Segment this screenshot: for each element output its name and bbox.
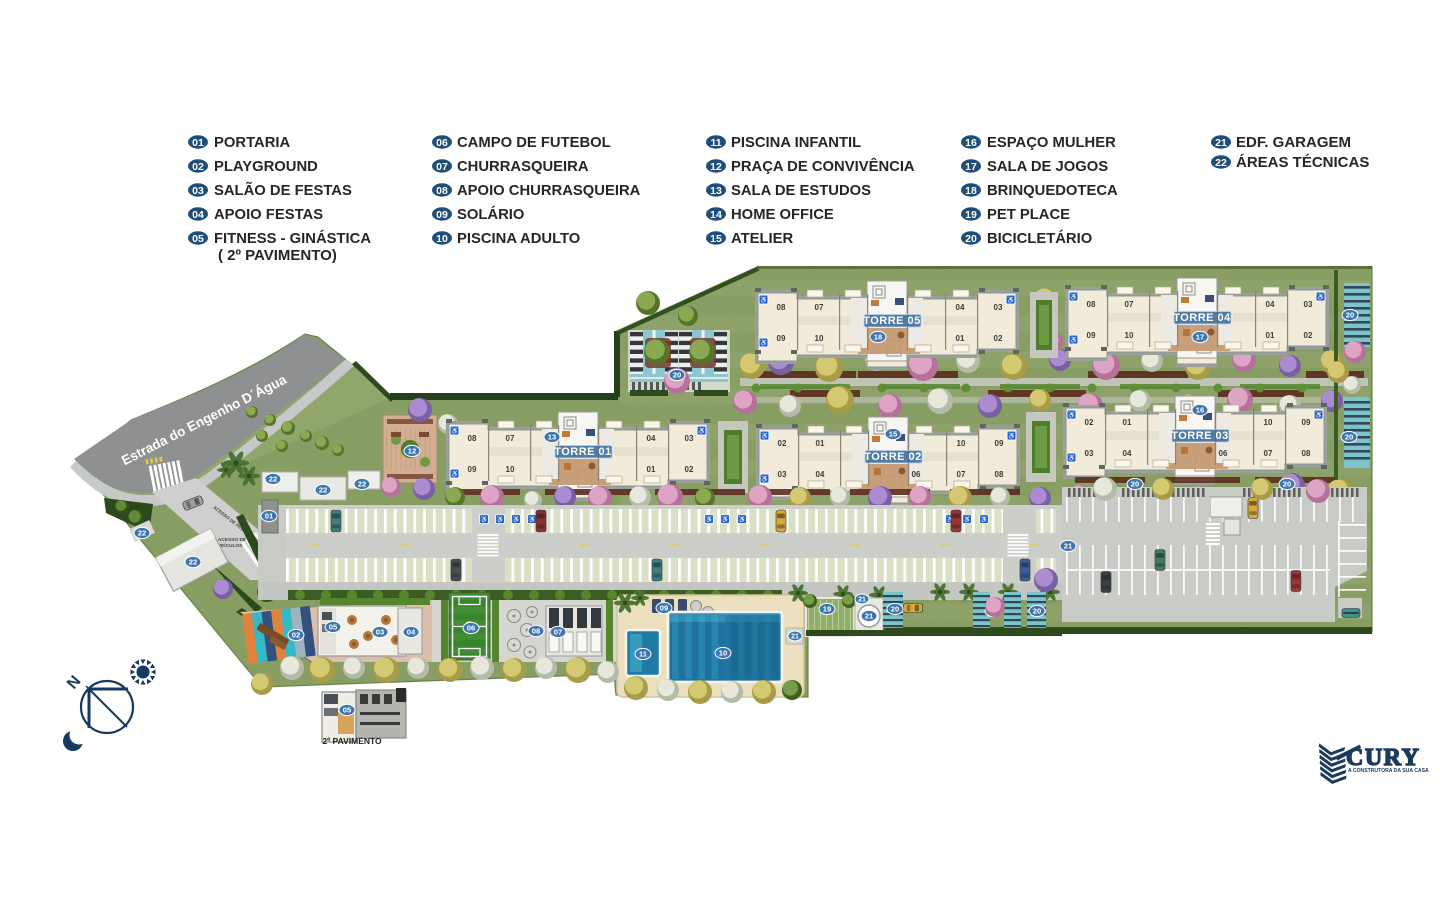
svg-text:22: 22 bbox=[319, 486, 327, 495]
svg-text:09: 09 bbox=[1302, 418, 1311, 427]
svg-text:♿: ♿ bbox=[760, 475, 768, 483]
svg-text:10: 10 bbox=[1125, 331, 1134, 340]
svg-text:04: 04 bbox=[956, 303, 965, 312]
svg-text:03: 03 bbox=[376, 628, 384, 637]
svg-text:♿: ♿ bbox=[450, 470, 458, 478]
svg-text:10: 10 bbox=[506, 465, 515, 474]
svg-text:09: 09 bbox=[1087, 331, 1096, 340]
svg-text:15: 15 bbox=[889, 430, 898, 439]
svg-text:♿: ♿ bbox=[1067, 454, 1075, 462]
svg-text:11: 11 bbox=[710, 137, 721, 149]
svg-text:10: 10 bbox=[957, 439, 966, 448]
svg-text:SALA DE JOGOS: SALA DE JOGOS bbox=[987, 159, 1108, 175]
svg-text:01: 01 bbox=[956, 334, 965, 343]
svg-text:20: 20 bbox=[1283, 480, 1291, 489]
svg-text:22: 22 bbox=[1215, 157, 1227, 169]
svg-text:10: 10 bbox=[436, 233, 448, 245]
svg-text:05: 05 bbox=[343, 706, 352, 715]
svg-text:02: 02 bbox=[292, 631, 300, 640]
svg-text:18: 18 bbox=[965, 185, 977, 197]
svg-text:16: 16 bbox=[1196, 406, 1204, 415]
svg-text:09: 09 bbox=[777, 334, 786, 343]
svg-text:19: 19 bbox=[965, 209, 977, 221]
svg-text:21: 21 bbox=[858, 597, 866, 604]
svg-text:PET PLACE: PET PLACE bbox=[987, 207, 1070, 223]
svg-text:A CONSTRUTORA DA SUA CASA: A CONSTRUTORA DA SUA CASA bbox=[1348, 768, 1429, 774]
svg-text:ATELIER: ATELIER bbox=[731, 231, 794, 247]
svg-text:02: 02 bbox=[192, 161, 204, 173]
svg-text:07: 07 bbox=[506, 434, 515, 443]
svg-text:ÁREAS TÉCNICAS: ÁREAS TÉCNICAS bbox=[1236, 154, 1369, 171]
svg-text:♿: ♿ bbox=[1006, 296, 1014, 304]
svg-text:20: 20 bbox=[965, 233, 977, 245]
svg-text:PLAYGROUND: PLAYGROUND bbox=[214, 159, 318, 175]
svg-text:21: 21 bbox=[1064, 542, 1073, 551]
svg-text:05: 05 bbox=[329, 623, 338, 632]
svg-text:♿: ♿ bbox=[705, 516, 713, 524]
svg-text:08: 08 bbox=[532, 627, 540, 636]
svg-text:20: 20 bbox=[891, 605, 899, 614]
svg-text:♿: ♿ bbox=[450, 427, 458, 435]
svg-text:20: 20 bbox=[1345, 433, 1353, 442]
svg-text:APOIO CHURRASQUEIRA: APOIO CHURRASQUEIRA bbox=[457, 183, 641, 199]
svg-text:02: 02 bbox=[1085, 418, 1094, 427]
svg-text:01: 01 bbox=[1123, 418, 1132, 427]
svg-text:07: 07 bbox=[554, 628, 562, 637]
svg-text:TORRE 04: TORRE 04 bbox=[1173, 312, 1231, 324]
svg-text:15: 15 bbox=[710, 233, 722, 245]
svg-text:♿: ♿ bbox=[760, 432, 768, 440]
svg-text:TORRE 01: TORRE 01 bbox=[554, 446, 612, 458]
svg-text:07: 07 bbox=[1264, 449, 1273, 458]
svg-text:07: 07 bbox=[1125, 300, 1134, 309]
svg-text:11: 11 bbox=[639, 650, 648, 659]
svg-text:♿: ♿ bbox=[480, 516, 488, 524]
svg-text:02: 02 bbox=[685, 465, 694, 474]
svg-text:TORRE 02: TORRE 02 bbox=[864, 451, 922, 463]
svg-text:22: 22 bbox=[138, 529, 146, 538]
svg-text:♿: ♿ bbox=[759, 296, 767, 304]
svg-text:03: 03 bbox=[778, 470, 787, 479]
svg-text:12: 12 bbox=[710, 161, 722, 173]
svg-text:04: 04 bbox=[1123, 449, 1132, 458]
svg-text:SALÃO DE FESTAS: SALÃO DE FESTAS bbox=[214, 181, 352, 199]
svg-text:TORRE 03: TORRE 03 bbox=[1171, 430, 1229, 442]
svg-text:04: 04 bbox=[647, 434, 656, 443]
svg-text:♿: ♿ bbox=[759, 339, 767, 347]
svg-text:♿: ♿ bbox=[738, 516, 746, 524]
svg-text:♿: ♿ bbox=[1069, 293, 1077, 301]
svg-text:BRINQUEDOTECA: BRINQUEDOTECA bbox=[987, 183, 1118, 199]
svg-text:PRAÇA DE CONVIVÊNCIA: PRAÇA DE CONVIVÊNCIA bbox=[731, 157, 915, 175]
svg-text:09: 09 bbox=[660, 604, 668, 613]
svg-text:08: 08 bbox=[1302, 449, 1311, 458]
svg-text:03: 03 bbox=[994, 303, 1003, 312]
svg-text:02: 02 bbox=[994, 334, 1003, 343]
svg-text:♿: ♿ bbox=[528, 516, 536, 524]
svg-text:♿: ♿ bbox=[1069, 336, 1077, 344]
svg-text:04: 04 bbox=[407, 628, 416, 637]
svg-text:08: 08 bbox=[436, 185, 448, 197]
svg-text:22: 22 bbox=[269, 475, 277, 484]
svg-text:♿: ♿ bbox=[963, 516, 971, 524]
svg-text:12: 12 bbox=[408, 447, 416, 456]
svg-text:04: 04 bbox=[1266, 300, 1275, 309]
svg-text:21: 21 bbox=[791, 634, 799, 641]
svg-text:13: 13 bbox=[548, 433, 556, 442]
svg-text:SOLÁRIO: SOLÁRIO bbox=[457, 206, 524, 223]
svg-text:♿: ♿ bbox=[721, 516, 729, 524]
svg-text:♿: ♿ bbox=[980, 516, 988, 524]
svg-text:01: 01 bbox=[647, 465, 656, 474]
svg-text:19: 19 bbox=[823, 605, 831, 614]
svg-text:17: 17 bbox=[1196, 333, 1204, 342]
svg-text:09: 09 bbox=[995, 439, 1004, 448]
svg-text:08: 08 bbox=[995, 470, 1004, 479]
svg-text:APOIO FESTAS: APOIO FESTAS bbox=[214, 207, 323, 223]
svg-text:N: N bbox=[64, 673, 84, 693]
svg-text:♿: ♿ bbox=[1316, 293, 1324, 301]
svg-text:21: 21 bbox=[865, 612, 874, 621]
svg-text:HOME OFFICE: HOME OFFICE bbox=[731, 207, 834, 223]
svg-text:10: 10 bbox=[719, 649, 727, 658]
svg-text:18: 18 bbox=[874, 333, 882, 342]
svg-text:17: 17 bbox=[965, 161, 977, 173]
svg-text:04: 04 bbox=[192, 209, 204, 221]
svg-text:PISCINA INFANTIL: PISCINA INFANTIL bbox=[731, 135, 861, 151]
svg-text:10: 10 bbox=[815, 334, 824, 343]
svg-text:♿: ♿ bbox=[697, 427, 705, 435]
svg-text:PISCINA ADULTO: PISCINA ADULTO bbox=[457, 231, 580, 247]
svg-text:22: 22 bbox=[189, 558, 197, 567]
svg-text:05: 05 bbox=[192, 233, 204, 245]
svg-text:08: 08 bbox=[1087, 300, 1096, 309]
svg-text:13: 13 bbox=[710, 185, 722, 197]
svg-text:EDF. GARAGEM: EDF. GARAGEM bbox=[1236, 134, 1351, 151]
svg-text:TORRE 05: TORRE 05 bbox=[863, 315, 921, 327]
svg-text:20: 20 bbox=[673, 371, 681, 380]
svg-text:FITNESS - GINÁSTICA: FITNESS - GINÁSTICA bbox=[214, 230, 371, 247]
svg-text:04: 04 bbox=[816, 470, 825, 479]
svg-text:14: 14 bbox=[710, 209, 722, 221]
svg-text:♿: ♿ bbox=[1067, 411, 1075, 419]
svg-text:02: 02 bbox=[778, 439, 787, 448]
svg-text:CAMPO DE FUTEBOL: CAMPO DE FUTEBOL bbox=[457, 135, 611, 151]
svg-text:08: 08 bbox=[777, 303, 786, 312]
svg-text:16: 16 bbox=[965, 137, 977, 149]
svg-text:BICICLETÁRIO: BICICLETÁRIO bbox=[987, 230, 1092, 247]
svg-text:03: 03 bbox=[685, 434, 694, 443]
svg-text:PORTARIA: PORTARIA bbox=[214, 135, 290, 151]
svg-text:♿: ♿ bbox=[496, 516, 504, 524]
svg-text:07: 07 bbox=[436, 161, 448, 173]
svg-text:06: 06 bbox=[912, 470, 921, 479]
svg-text:( 2º PAVIMENTO): ( 2º PAVIMENTO) bbox=[218, 247, 337, 264]
svg-text:01: 01 bbox=[816, 439, 825, 448]
svg-text:06: 06 bbox=[467, 624, 475, 633]
svg-text:10: 10 bbox=[1264, 418, 1273, 427]
svg-text:20: 20 bbox=[1131, 480, 1139, 489]
svg-text:06: 06 bbox=[1219, 449, 1228, 458]
svg-text:♿: ♿ bbox=[512, 516, 520, 524]
svg-text:♿: ♿ bbox=[1314, 411, 1322, 419]
svg-text:03: 03 bbox=[192, 185, 204, 197]
svg-text:20: 20 bbox=[1346, 311, 1354, 320]
svg-text:07: 07 bbox=[815, 303, 824, 312]
svg-text:21: 21 bbox=[1215, 137, 1227, 149]
svg-text:01: 01 bbox=[1266, 331, 1275, 340]
svg-text:ESPAÇO MULHER: ESPAÇO MULHER bbox=[987, 135, 1116, 151]
svg-text:09: 09 bbox=[468, 465, 477, 474]
svg-text:01: 01 bbox=[192, 137, 204, 149]
svg-text:08: 08 bbox=[468, 434, 477, 443]
svg-text:07: 07 bbox=[957, 470, 966, 479]
svg-text:03: 03 bbox=[1085, 449, 1094, 458]
svg-text:22: 22 bbox=[358, 480, 366, 489]
svg-text:03: 03 bbox=[1304, 300, 1313, 309]
svg-text:2º PAVIMENTO: 2º PAVIMENTO bbox=[322, 736, 382, 746]
svg-text:20: 20 bbox=[1033, 607, 1041, 616]
svg-text:♿: ♿ bbox=[1007, 432, 1015, 440]
svg-text:CHURRASQUEIRA: CHURRASQUEIRA bbox=[457, 159, 589, 175]
svg-text:09: 09 bbox=[436, 209, 448, 221]
svg-text:06: 06 bbox=[436, 137, 448, 149]
svg-text:SALA DE ESTUDOS: SALA DE ESTUDOS bbox=[731, 183, 871, 199]
svg-text:01: 01 bbox=[265, 512, 274, 521]
svg-text:02: 02 bbox=[1304, 331, 1313, 340]
